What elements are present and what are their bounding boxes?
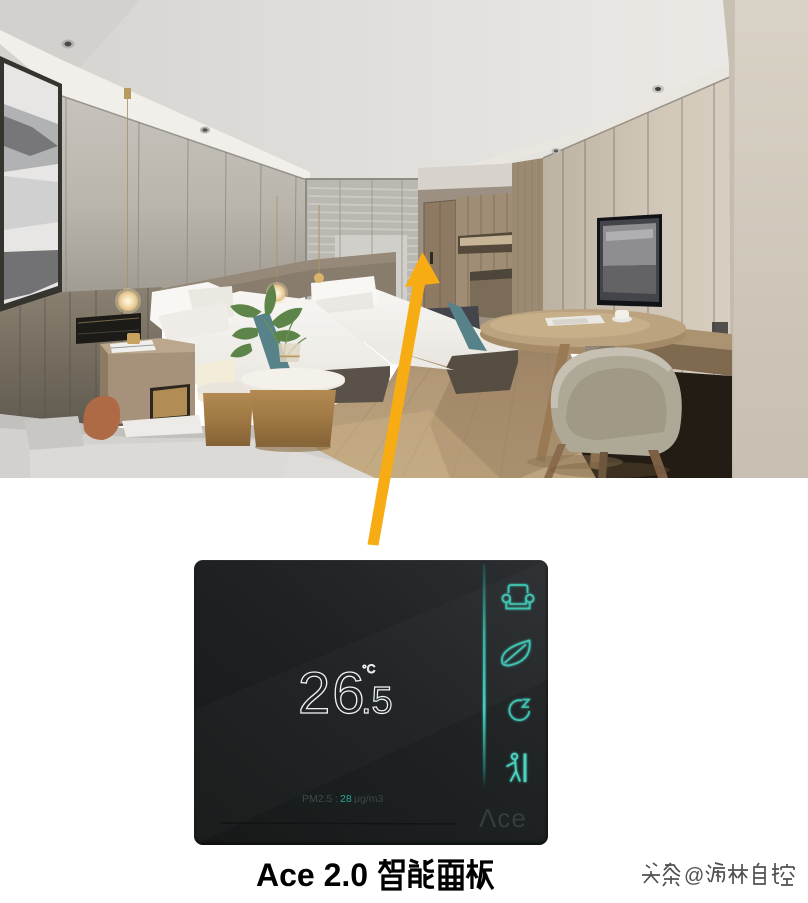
svg-text:PM2.5 :: PM2.5 : bbox=[302, 793, 338, 805]
svg-text:°C: °C bbox=[362, 662, 376, 676]
svg-text:@: @ bbox=[684, 865, 704, 887]
svg-text:μg/m3: μg/m3 bbox=[354, 793, 384, 805]
svg-text:.5: .5 bbox=[361, 680, 393, 722]
svg-text:26: 26 bbox=[298, 661, 367, 726]
svg-text:Λce: Λce bbox=[479, 803, 527, 833]
svg-text:28: 28 bbox=[340, 793, 352, 805]
